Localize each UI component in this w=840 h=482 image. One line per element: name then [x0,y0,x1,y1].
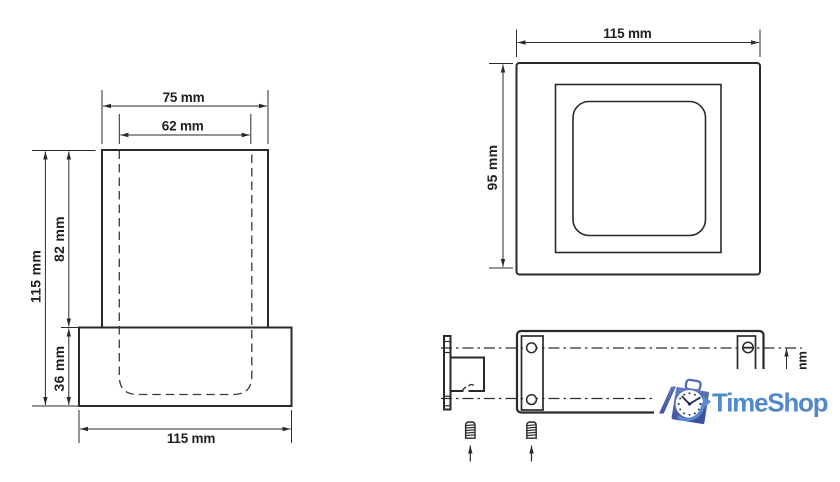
svg-text:TimeShop: TimeShop [712,390,828,418]
svg-text:82 mm: 82 mm [51,216,67,262]
svg-text:115 mm: 115 mm [28,250,44,303]
svg-text:95 mm: 95 mm [484,145,500,191]
svg-text:36 mm: 36 mm [51,346,67,392]
svg-text:115 mm: 115 mm [603,26,652,41]
svg-text:62 mm: 62 mm [162,119,204,134]
svg-text:115 mm: 115 mm [167,431,216,446]
svg-text:75 mm: 75 mm [163,90,205,105]
